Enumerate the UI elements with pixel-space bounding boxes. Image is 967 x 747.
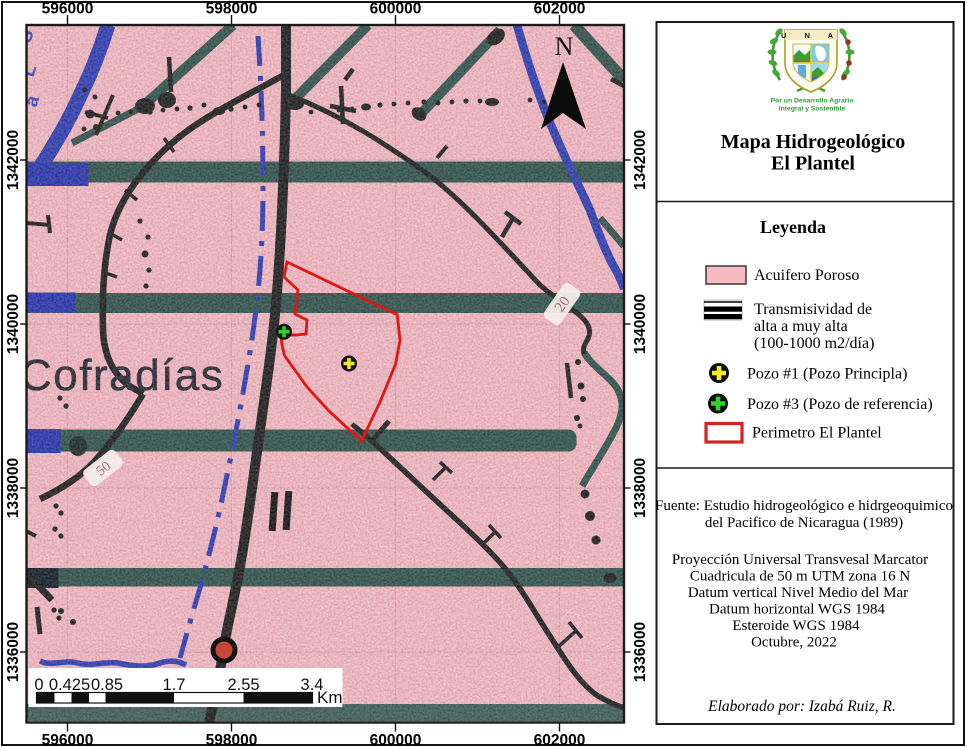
svg-text:Datum horizontal WGS 1984: Datum horizontal WGS 1984 [709, 602, 885, 618]
svg-text:Acuifero Poroso: Acuifero Poroso [754, 267, 859, 284]
svg-text:1336000: 1336000 [632, 622, 649, 682]
svg-text:Fuente: Estudio hidrogeológico: Fuente: Estudio hidrogeológico e hidrgeo… [655, 498, 953, 514]
svg-text:1340000: 1340000 [5, 294, 22, 354]
svg-text:Cuadricula de 50 m UTM zona 16: Cuadricula de 50 m UTM zona 16 N [690, 569, 911, 585]
svg-text:Transmisividad de: Transmisividad de [754, 301, 872, 318]
svg-text:El Plantel: El Plantel [771, 153, 855, 175]
svg-text:1.7: 1.7 [163, 676, 186, 694]
svg-text:Esteroide WGS 1984: Esteroide WGS 1984 [732, 618, 860, 634]
svg-text:U N A: U N A [781, 31, 841, 40]
svg-text:0.425: 0.425 [49, 676, 90, 694]
svg-text:596000: 596000 [42, 732, 94, 747]
svg-text:602000: 602000 [534, 732, 586, 747]
svg-text:(100-1000 m2/día): (100-1000 m2/día) [754, 335, 874, 352]
svg-text:1342000: 1342000 [632, 130, 649, 190]
svg-text:Pozo #1 (Pozo Principla): Pozo #1 (Pozo Principla) [747, 366, 907, 383]
svg-text:Integral y Sostenible: Integral y Sostenible [779, 106, 846, 113]
svg-text:600000: 600000 [370, 1, 422, 18]
svg-text:1340000: 1340000 [632, 294, 649, 354]
svg-text:0: 0 [34, 676, 43, 694]
svg-text:alta a muy alta: alta a muy alta [754, 318, 848, 335]
svg-text:Km: Km [317, 688, 343, 707]
svg-text:1338000: 1338000 [5, 458, 22, 518]
svg-text:Perimetro El Plantel: Perimetro El Plantel [752, 425, 882, 442]
svg-text:Datum vertical Nivel Medio del: Datum vertical Nivel Medio del Mar [688, 585, 908, 601]
svg-text:del Pacifico de Nicaragua (198: del Pacifico de Nicaragua (1989) [705, 515, 903, 531]
svg-text:Leyenda: Leyenda [760, 217, 826, 237]
svg-text:0.85: 0.85 [91, 676, 123, 694]
svg-text:Pozo #3 (Pozo de referencia): Pozo #3 (Pozo de referencia) [747, 396, 933, 413]
svg-text:N: N [555, 32, 574, 61]
svg-text:Elaborado por: Izabá Ruiz, R.: Elaborado por: Izabá Ruiz, R. [707, 698, 896, 715]
svg-text:600000: 600000 [370, 732, 422, 747]
svg-text:598000: 598000 [206, 732, 258, 747]
svg-text:596000: 596000 [42, 1, 94, 18]
svg-text:Octubre, 2022: Octubre, 2022 [751, 635, 837, 651]
svg-text:Proyección Universal Transvesa: Proyección Universal Transvesal Marcator [672, 552, 928, 568]
svg-text:598000: 598000 [206, 1, 258, 18]
svg-text:1342000: 1342000 [5, 130, 22, 190]
svg-text:2.55: 2.55 [227, 676, 259, 694]
svg-text:1338000: 1338000 [632, 458, 649, 518]
svg-text:602000: 602000 [534, 1, 586, 18]
svg-text:Mapa Hidrogeológico: Mapa Hidrogeológico [721, 131, 906, 153]
svg-text:1336000: 1336000 [5, 622, 22, 682]
svg-text:Por un Desarrollo Agrario: Por un Desarrollo Agrario [771, 98, 854, 105]
